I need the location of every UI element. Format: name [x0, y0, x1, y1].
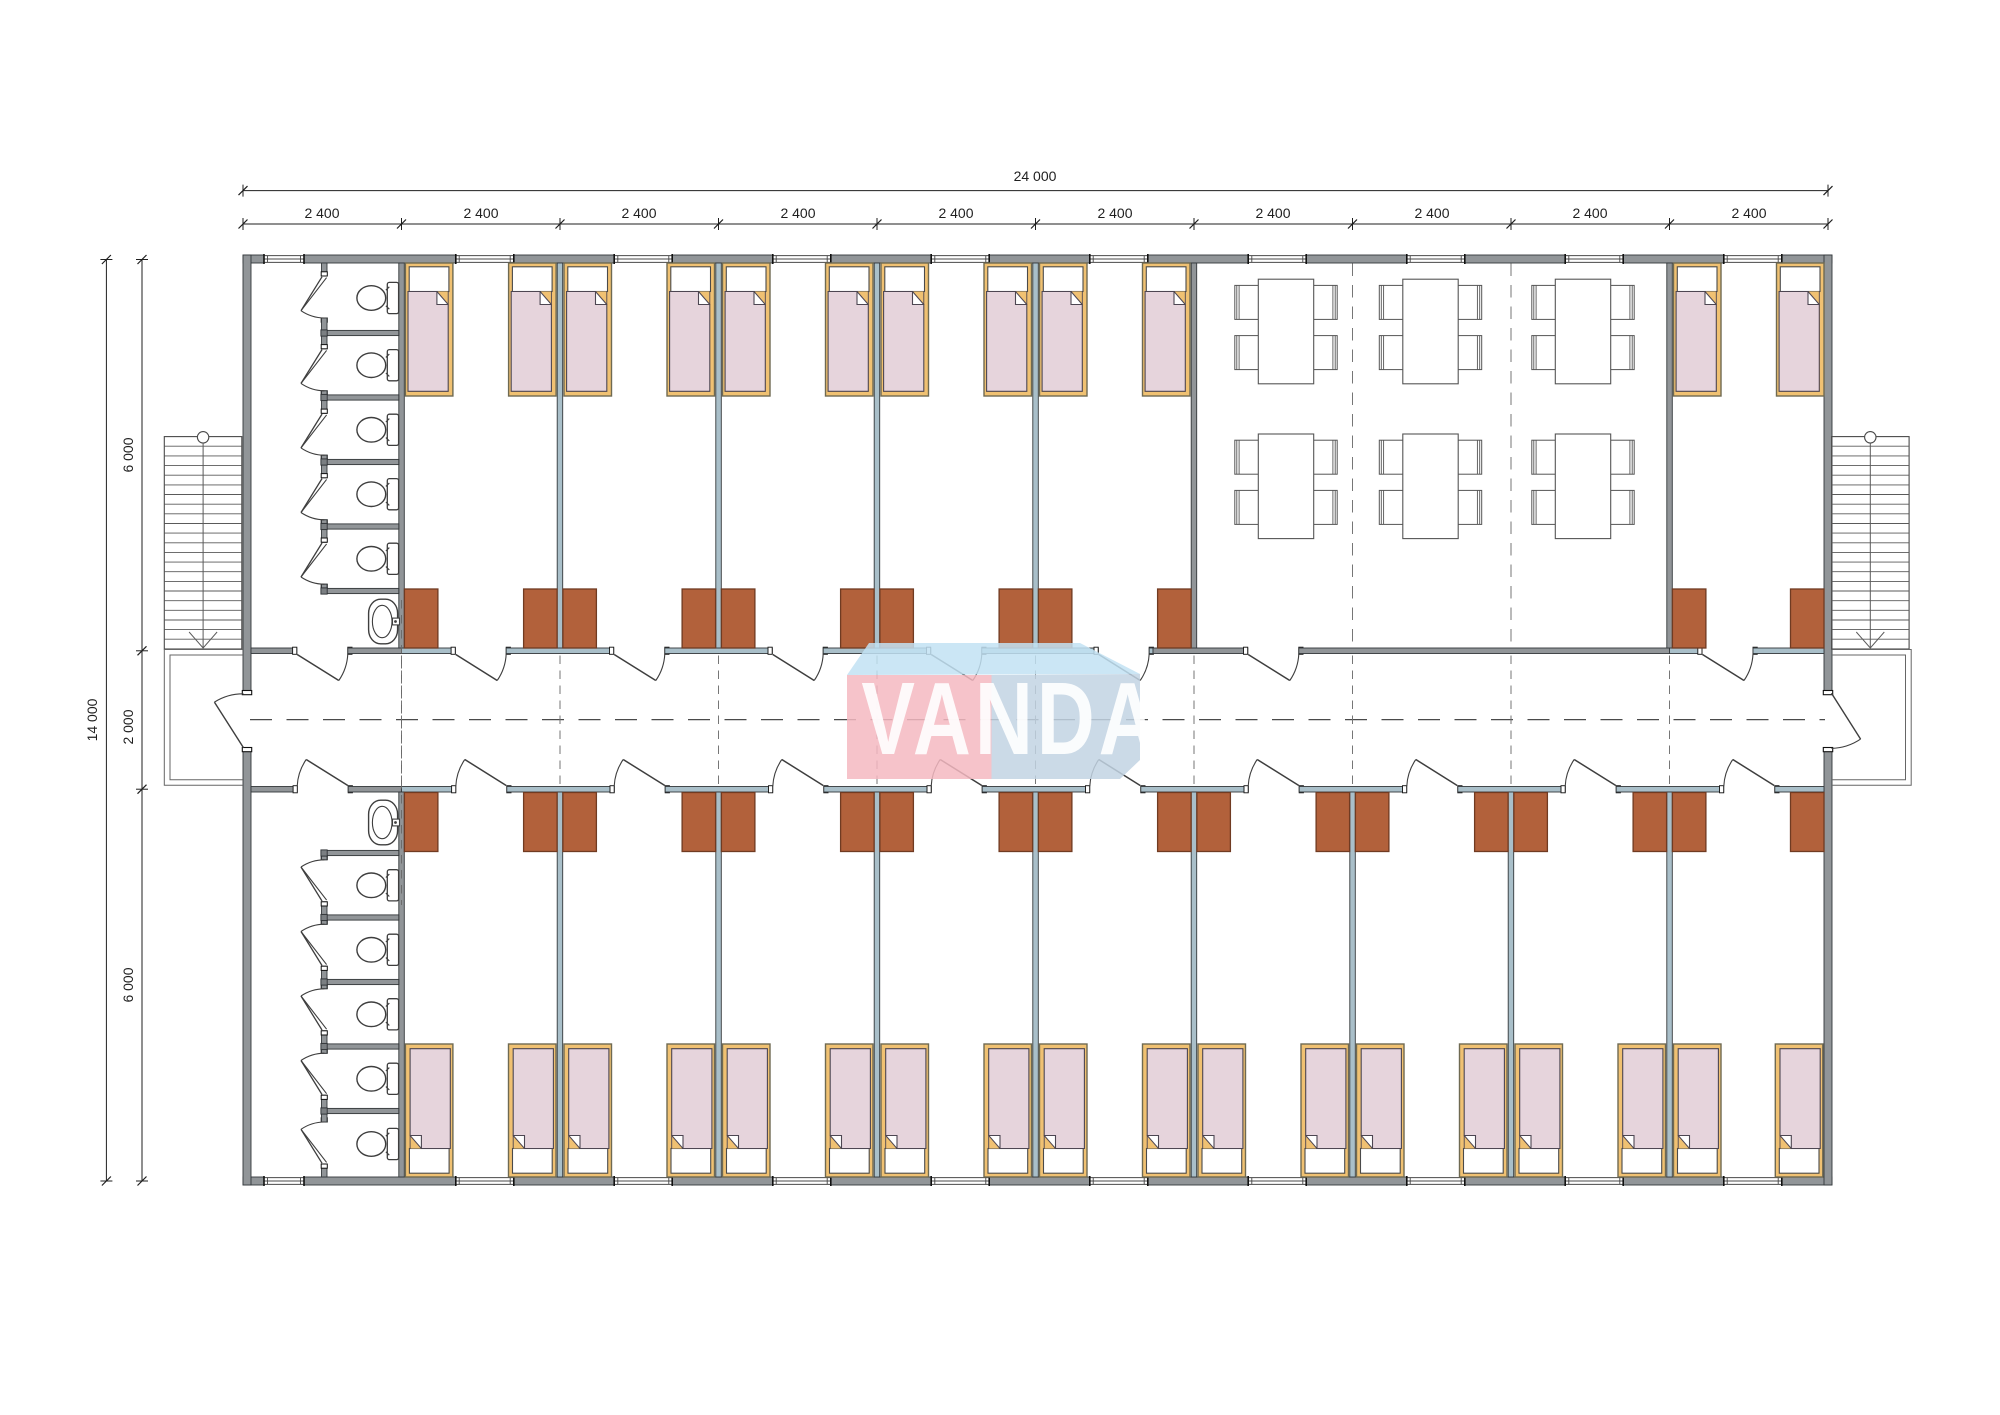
svg-text:6 000: 6 000 [120, 437, 136, 472]
svg-text:2 400: 2 400 [938, 205, 973, 221]
svg-text:VANDA: VANDA [861, 660, 1160, 776]
svg-text:14 000: 14 000 [84, 698, 100, 741]
svg-text:2 000: 2 000 [120, 709, 136, 744]
svg-text:6 000: 6 000 [120, 967, 136, 1002]
svg-text:2 400: 2 400 [1097, 205, 1132, 221]
svg-text:2 400: 2 400 [463, 205, 498, 221]
svg-text:2 400: 2 400 [1255, 205, 1290, 221]
svg-text:24 000: 24 000 [1014, 168, 1057, 184]
svg-text:2 400: 2 400 [1414, 205, 1449, 221]
svg-text:2 400: 2 400 [1572, 205, 1607, 221]
svg-text:2 400: 2 400 [621, 205, 656, 221]
svg-text:2 400: 2 400 [1731, 205, 1766, 221]
svg-text:2 400: 2 400 [780, 205, 815, 221]
svg-text:2 400: 2 400 [304, 205, 339, 221]
